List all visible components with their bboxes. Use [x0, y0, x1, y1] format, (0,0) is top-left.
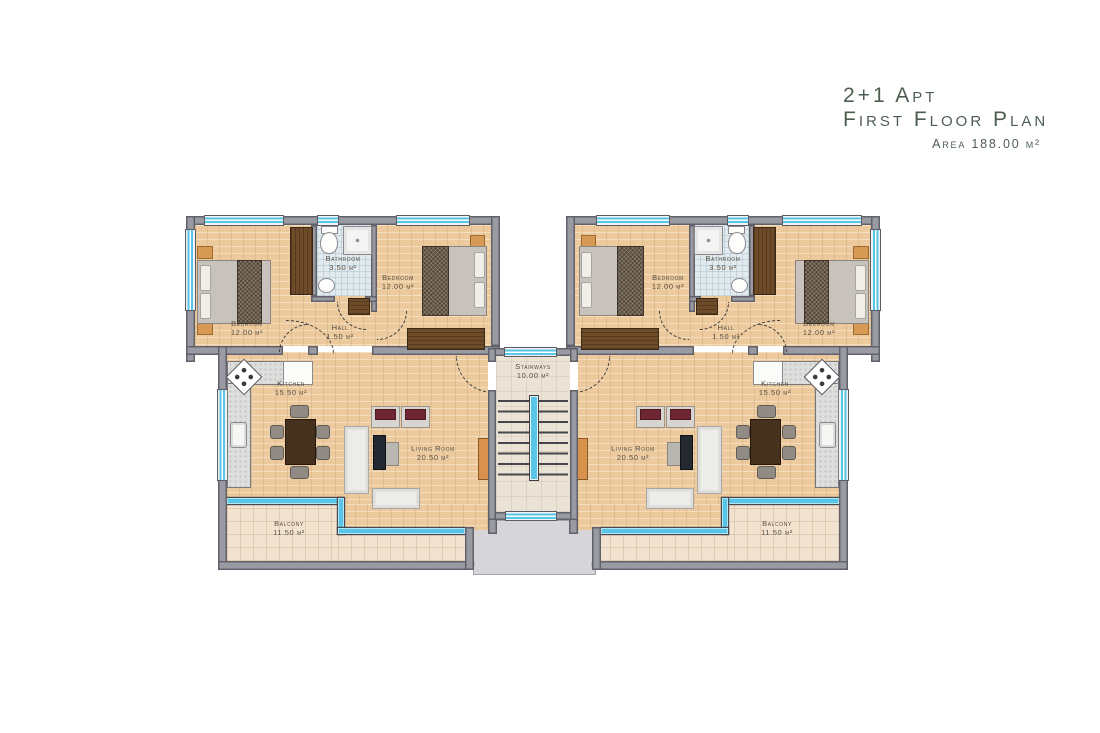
plan-area-subtitle: Area 188.00 m²: [843, 137, 1043, 151]
wall: [570, 348, 578, 362]
wall: [592, 561, 848, 570]
stairway-window: [506, 512, 556, 520]
bathroom-label: Bathroom 3.50 m²: [301, 255, 385, 272]
chair: [736, 446, 750, 460]
hall-label: Hall 1.50 m²: [684, 324, 768, 341]
wall: [488, 348, 496, 362]
kitchen-window: [839, 390, 848, 480]
room-area: 12.00 m²: [626, 283, 710, 292]
dining-table: [750, 419, 781, 465]
toilet: [728, 232, 746, 254]
pillow: [855, 293, 866, 319]
wardrobe: [407, 328, 485, 350]
hall-label: Hall 1.50 m²: [298, 324, 382, 341]
chair: [270, 446, 284, 460]
bedroom-label: Bedroom 12.00 m²: [205, 320, 289, 337]
bedroom-window: [783, 216, 861, 225]
kitchen-sink: [230, 422, 247, 448]
pillow: [581, 252, 592, 278]
title-block: 2+1 Apt First Floor Plan Area 188.00 m²: [843, 84, 1043, 151]
stairways-label: Stairways 10.00 m²: [491, 363, 575, 380]
balcony-wall: [592, 527, 601, 570]
room-area: 12.00 m²: [356, 283, 440, 292]
room-area: 12.00 m²: [777, 329, 861, 338]
sofa: [697, 426, 722, 494]
kitchen-sink: [819, 422, 836, 448]
plan-name-title: First Floor Plan: [843, 108, 1043, 132]
chair: [757, 405, 776, 418]
armchair-cushion: [375, 409, 396, 420]
room-area: 15.50 m²: [249, 389, 333, 398]
wall: [731, 296, 755, 302]
bathroom-label: Bathroom 3.50 m²: [681, 255, 765, 272]
wall: [783, 346, 880, 355]
bedroom-window: [597, 216, 669, 225]
bedroom-window: [397, 216, 469, 225]
stairway-window: [505, 348, 556, 356]
balcony-railing: [338, 528, 465, 534]
chair: [270, 425, 284, 439]
chair: [782, 425, 796, 439]
bathroom-sink: [731, 278, 748, 293]
kitchen-label: Kitchen 15.50 m²: [249, 380, 333, 397]
pillow: [581, 282, 592, 308]
room-area: 1.50 m²: [684, 333, 768, 342]
bedroom-side-window: [871, 230, 880, 310]
kitchen-window: [218, 390, 227, 480]
armchair-cushion: [670, 409, 691, 420]
balcony-railing: [227, 498, 343, 504]
kitchen-label: Kitchen 15.50 m²: [733, 380, 817, 397]
pillow: [855, 265, 866, 291]
room-area: 11.50 m²: [247, 529, 331, 538]
chair: [316, 446, 330, 460]
balcony-wall: [465, 527, 474, 570]
wall: [491, 216, 500, 346]
room-area: 1.50 m²: [298, 333, 382, 342]
balcony-floor: [338, 534, 465, 561]
chair: [290, 405, 309, 418]
bedroom-side-window: [186, 230, 195, 310]
wall: [311, 296, 335, 302]
shower: [343, 226, 372, 255]
bathroom-sink: [318, 278, 335, 293]
bedroom-label: Bedroom 12.00 m²: [777, 320, 861, 337]
room-area: 3.50 m²: [681, 264, 765, 273]
bed-blanket: [237, 260, 262, 324]
bedroom-window: [205, 216, 283, 225]
tv: [680, 435, 693, 470]
balcony-label: Balcony 11.50 m²: [247, 520, 331, 537]
toilet: [320, 232, 338, 254]
sofa: [372, 488, 420, 509]
pillow: [474, 252, 485, 278]
stair-rail: [529, 395, 539, 481]
chair: [316, 425, 330, 439]
pillow: [200, 293, 211, 319]
sofa: [646, 488, 694, 509]
tv: [373, 435, 386, 470]
bathroom-window: [318, 216, 338, 225]
room-area: 10.00 m²: [491, 372, 575, 381]
chair: [736, 425, 750, 439]
chair: [757, 466, 776, 479]
balcony-label: Balcony 11.50 m²: [735, 520, 819, 537]
room-area: 20.50 m²: [391, 454, 475, 463]
nightstand: [853, 246, 869, 259]
apartment-left: Bedroom 12.00 m² Bathroom 3.50 m² Bedroo…: [186, 216, 505, 575]
wall: [566, 216, 575, 346]
balcony-railing: [723, 498, 839, 504]
room-area: 3.50 m²: [301, 264, 385, 273]
room-area: 20.50 m²: [591, 454, 675, 463]
bed-blanket: [804, 260, 829, 324]
bedroom-label: Bedroom 12.00 m²: [626, 274, 710, 291]
living-room-label: Living Room 20.50 m²: [391, 445, 475, 462]
bedroom-label: Bedroom 12.00 m²: [356, 274, 440, 291]
bathroom-window: [728, 216, 748, 225]
room-area: 11.50 m²: [735, 529, 819, 538]
armchair-cushion: [405, 409, 426, 420]
room-area: 12.00 m²: [205, 329, 289, 338]
balcony-floor: [601, 534, 728, 561]
apartment-right: Bedroom 12.00 m² Bathroom 3.50 m² Bedroo…: [561, 216, 880, 575]
dining-table: [285, 419, 316, 465]
wall: [218, 561, 474, 570]
apartment-type-title: 2+1 Apt: [843, 84, 1043, 108]
balcony-railing: [601, 528, 728, 534]
room-area: 15.50 m²: [733, 389, 817, 398]
wardrobe: [581, 328, 659, 350]
pillow: [474, 282, 485, 308]
floor-plan-canvas: 2+1 Apt First Floor Plan Area 188.00 m²: [0, 0, 1100, 733]
wall: [570, 390, 578, 520]
armchair-cushion: [640, 409, 661, 420]
wall: [488, 390, 496, 520]
chair: [782, 446, 796, 460]
wall: [186, 346, 283, 355]
nightstand: [197, 246, 213, 259]
shower: [694, 226, 723, 255]
pillow: [200, 265, 211, 291]
living-room-label: Living Room 20.50 m²: [591, 445, 675, 462]
sofa: [344, 426, 369, 494]
chair: [290, 466, 309, 479]
